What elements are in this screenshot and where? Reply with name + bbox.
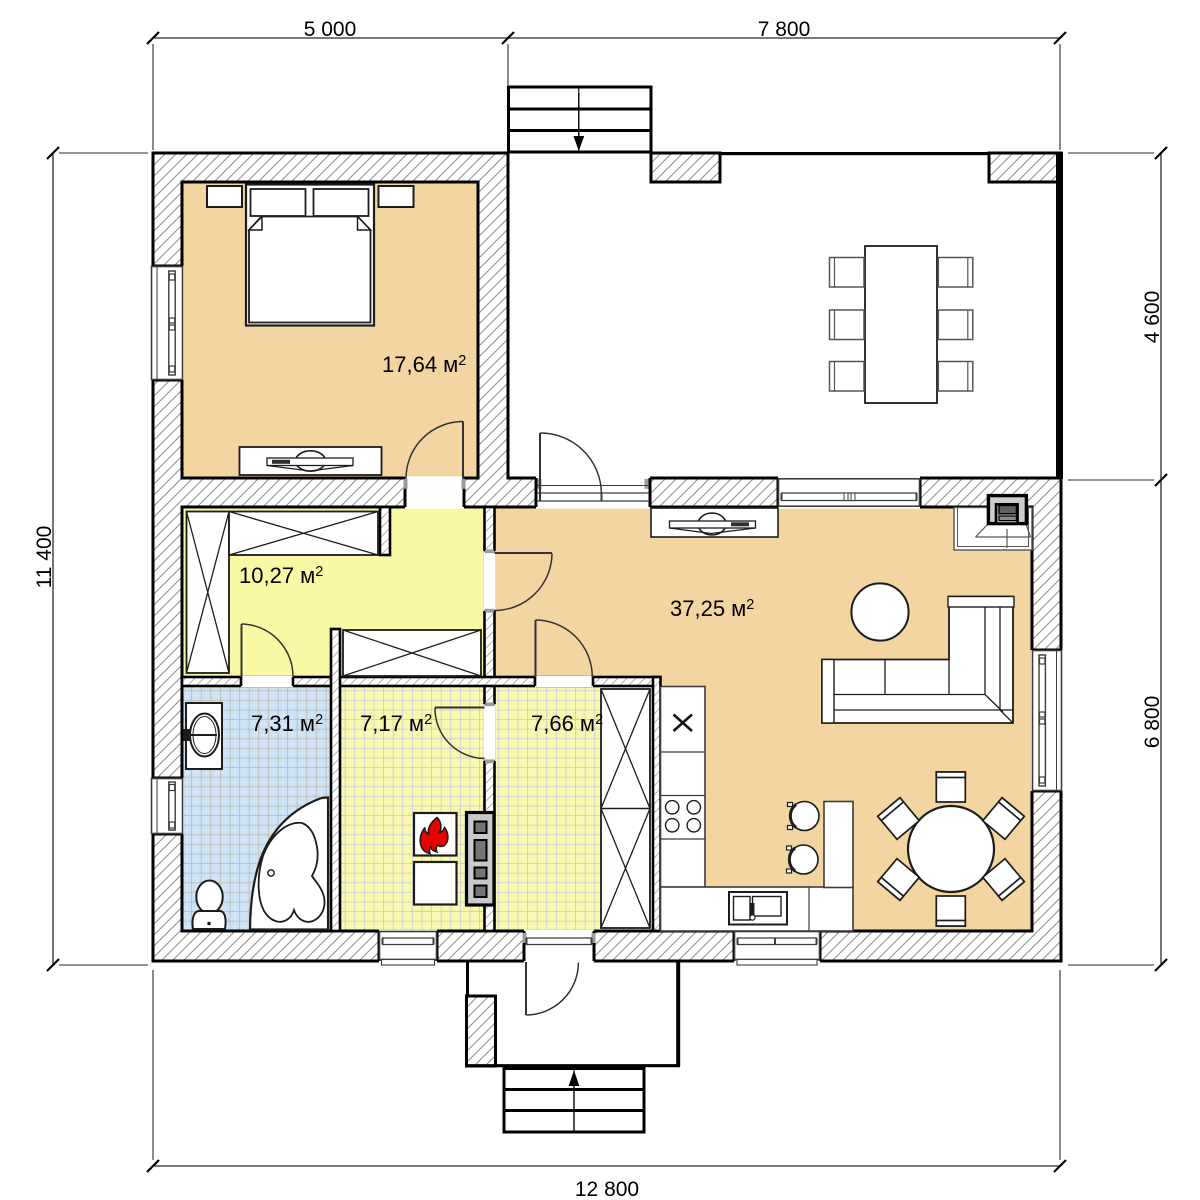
svg-text:4 600: 4 600 bbox=[1141, 291, 1164, 344]
svg-text:37,25 м2: 37,25 м2 bbox=[670, 596, 754, 621]
svg-text:7,66 м2: 7,66 м2 bbox=[531, 711, 603, 736]
svg-text:11 400: 11 400 bbox=[33, 526, 56, 589]
svg-text:17,64 м2: 17,64 м2 bbox=[382, 352, 466, 377]
svg-text:7 800: 7 800 bbox=[758, 18, 811, 41]
svg-text:10,27 м2: 10,27 м2 bbox=[239, 563, 323, 588]
svg-text:5 000: 5 000 bbox=[304, 18, 357, 41]
svg-text:12 800: 12 800 bbox=[575, 1178, 639, 1200]
svg-text:7,17 м2: 7,17 м2 bbox=[360, 711, 432, 736]
svg-text:7,31 м2: 7,31 м2 bbox=[251, 711, 323, 736]
svg-text:6 800: 6 800 bbox=[1141, 696, 1164, 749]
